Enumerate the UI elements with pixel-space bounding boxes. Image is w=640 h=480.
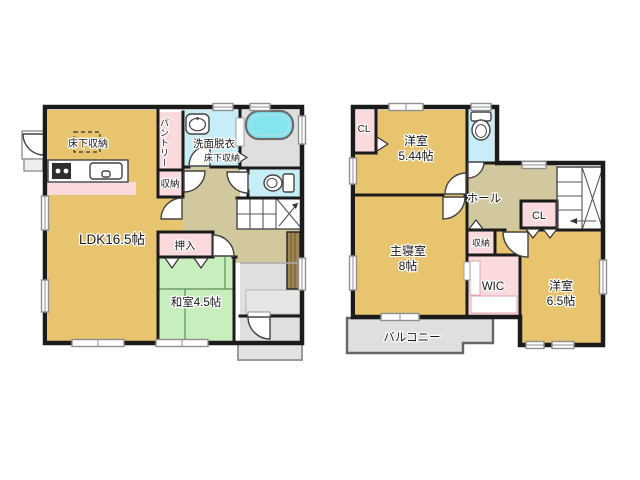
window: [42, 280, 49, 312]
label-storage-1f: 収納: [160, 178, 179, 190]
window: [156, 340, 208, 347]
label-storage-2f: 収納: [472, 237, 490, 248]
kitchen-floor-strip: [48, 182, 136, 195]
label-pantry: パントリー: [159, 118, 169, 168]
label-underfloor-storage-2: 床下収納: [204, 152, 240, 163]
label-cl-north: CL: [358, 124, 371, 135]
window: [389, 104, 423, 111]
label-master-size: 8帖: [399, 258, 418, 273]
label-master: 主寝室: [390, 243, 426, 258]
floor-1-plan: 床下収納 パントリー 洗面脱衣 床下収納 収納 LDK16.5帖 押入 和室4.…: [22, 104, 306, 361]
label-cl-center: CL: [532, 210, 546, 222]
wic-shelf: [470, 261, 480, 295]
balcony-sliding-door: [381, 314, 419, 321]
label-hall: ホール: [467, 192, 502, 205]
wic-shelf: [471, 296, 517, 313]
window: [72, 340, 124, 347]
window: [42, 196, 49, 230]
floor-plan-page: 床下収納 パントリー 洗面脱衣 床下収納 収納 LDK16.5帖 押入 和室4.…: [0, 0, 640, 480]
window: [600, 260, 607, 294]
label-oshiire: 押入: [175, 239, 196, 252]
window: [552, 342, 574, 349]
label-yoshitsu2: 洋室: [549, 278, 573, 293]
window: [299, 258, 306, 290]
floor-plan-drawing: 床下収納 パントリー 洗面脱衣 床下収納 収納 LDK16.5帖 押入 和室4.…: [0, 0, 640, 480]
stove-burner-icon: [64, 169, 69, 174]
sink-faucet-icon: [102, 171, 110, 177]
bath-sliding-door: [236, 118, 244, 146]
window: [299, 116, 306, 144]
label-washroom: 洗面脱衣: [193, 137, 235, 150]
window: [522, 162, 546, 169]
label-wic: WIC: [482, 281, 504, 293]
entrance-step: [246, 290, 302, 314]
toilet-tank-icon: [283, 174, 294, 192]
side-door-step: [24, 159, 43, 171]
label-yoshitsu1: 洋室: [404, 133, 428, 148]
washbasin-tap-icon: [196, 117, 199, 120]
label-underfloor-storage: 床下収納: [68, 137, 108, 150]
porch: [238, 344, 302, 360]
floor-2-plan: CL 洋室 5.44帖 ホール CL 収納 主寝室 8帖 WIC 洋室 6.5帖…: [347, 104, 607, 354]
label-yoshitsu2-size: 6.5帖: [547, 293, 576, 308]
label-washitsu: 和室4.5帖: [171, 295, 222, 309]
window: [350, 158, 357, 184]
label-yoshitsu1-size: 5.44帖: [398, 148, 433, 163]
label-balcony: バルコニー: [383, 331, 440, 344]
label-ldk: LDK16.5帖: [79, 232, 145, 247]
window: [526, 342, 544, 349]
window: [250, 104, 270, 111]
window: [350, 256, 357, 290]
stove-burner-icon: [56, 169, 61, 174]
wic-door: [464, 262, 470, 280]
window: [213, 104, 233, 111]
window: [471, 104, 491, 111]
